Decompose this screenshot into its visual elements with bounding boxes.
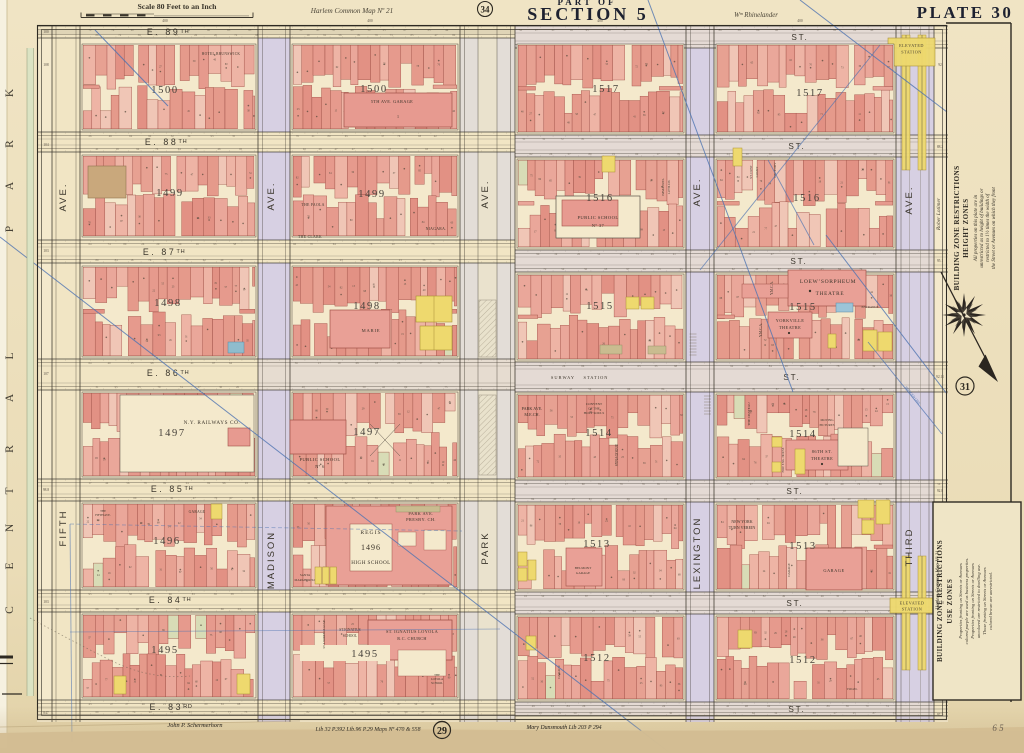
svg-text:66: 66 (745, 594, 749, 598)
svg-text:AVE.: AVE. (266, 182, 277, 211)
svg-text:70: 70 (310, 242, 314, 246)
svg-text:R.C. CHURCH: R.C. CHURCH (397, 636, 426, 641)
svg-text:46: 46 (109, 134, 113, 138)
svg-text:LUTH.CH.: LUTH.CH. (667, 180, 671, 195)
svg-text:50: 50 (415, 242, 419, 246)
svg-text:92.11: 92.11 (936, 375, 944, 379)
svg-text:41: 41 (96, 147, 100, 151)
svg-text:92: 92 (833, 28, 837, 32)
svg-text:6 5: 6 5 (992, 723, 1004, 733)
svg-text:75: 75 (628, 137, 632, 141)
svg-text:35: 35 (232, 134, 236, 138)
svg-text:63: 63 (737, 387, 741, 391)
svg-text:52: 52 (519, 28, 523, 32)
svg-text:82: 82 (763, 594, 767, 598)
svg-text:63: 63 (846, 137, 850, 141)
svg-text:34: 34 (481, 5, 491, 15)
svg-text:1515: 1515 (789, 302, 816, 313)
svg-text:PARK: PARK (480, 531, 491, 564)
svg-text:62: 62 (199, 607, 203, 611)
svg-text:61: 61 (300, 702, 304, 706)
svg-text:97: 97 (626, 267, 630, 271)
svg-text:Nº 6: Nº 6 (315, 464, 325, 469)
svg-text:Y.M.C.A.: Y.M.C.A. (770, 281, 774, 295)
svg-text:LEXINGTON: LEXINGTON (692, 517, 703, 590)
svg-text:50: 50 (438, 258, 442, 262)
svg-text:1496: 1496 (153, 536, 180, 547)
svg-text:24: 24 (874, 152, 878, 156)
svg-text:40: 40 (755, 267, 759, 271)
svg-text:74: 74 (765, 482, 769, 486)
svg-text:75: 75 (445, 385, 449, 389)
svg-text:80: 80 (561, 594, 565, 598)
svg-text:76: 76 (677, 152, 681, 156)
svg-text:91: 91 (825, 482, 829, 486)
svg-text:19: 19 (96, 496, 100, 500)
svg-text:17: 17 (318, 361, 322, 365)
svg-text:85: 85 (411, 33, 415, 37)
svg-text:32: 32 (438, 361, 442, 365)
svg-text:44: 44 (352, 496, 356, 500)
svg-text:59: 59 (325, 385, 329, 389)
svg-text:restricted to 1½ times the wid: restricted to 1½ times the width of (986, 193, 991, 262)
svg-text:56: 56 (295, 361, 299, 365)
svg-text:T: T (4, 487, 16, 494)
svg-text:59: 59 (376, 258, 380, 262)
svg-text:97: 97 (389, 607, 393, 611)
svg-text:GARAGE: GARAGE (189, 510, 206, 514)
svg-text:25: 25 (383, 28, 387, 32)
svg-text:SECTION 5: SECTION 5 (527, 4, 649, 24)
svg-text:93: 93 (664, 497, 668, 501)
svg-text:89: 89 (828, 609, 832, 613)
svg-text:56: 56 (126, 481, 130, 485)
svg-text:62: 62 (832, 497, 836, 501)
svg-text:50: 50 (561, 267, 565, 271)
svg-text:74: 74 (108, 242, 112, 246)
svg-text:26: 26 (785, 364, 789, 368)
svg-text:42: 42 (775, 28, 779, 32)
svg-text:1498: 1498 (154, 298, 181, 309)
svg-text:29: 29 (156, 242, 160, 246)
svg-text:49: 49 (651, 252, 655, 256)
svg-text:73: 73 (857, 482, 861, 486)
svg-text:58: 58 (233, 242, 237, 246)
svg-text:87: 87 (398, 702, 402, 706)
svg-text:46: 46 (821, 594, 825, 598)
svg-text:38: 38 (214, 592, 218, 596)
svg-text:29: 29 (889, 152, 893, 156)
svg-text:All properties on this plate a: All properties on this plate are in (974, 194, 979, 262)
svg-text:65: 65 (570, 28, 574, 32)
svg-text:31: 31 (546, 482, 550, 486)
svg-text:84: 84 (661, 387, 665, 391)
svg-text:47: 47 (193, 496, 197, 500)
svg-text:60: 60 (635, 152, 639, 156)
svg-text:THEATRE: THEATRE (779, 325, 801, 330)
svg-text:80: 80 (620, 364, 624, 368)
svg-text:62: 62 (129, 134, 133, 138)
svg-text:55: 55 (391, 481, 395, 485)
svg-text:90: 90 (131, 28, 135, 32)
svg-text:39: 39 (138, 33, 142, 37)
svg-text:NIAGARA.: NIAGARA. (426, 227, 447, 231)
svg-text:84: 84 (531, 497, 535, 501)
svg-text:31: 31 (96, 385, 100, 389)
svg-text:PLATE 30: PLATE 30 (917, 3, 1014, 22)
svg-text:35: 35 (649, 594, 653, 598)
svg-text:24: 24 (238, 607, 242, 611)
svg-text:79: 79 (158, 385, 162, 389)
svg-text:93: 93 (211, 134, 215, 138)
svg-text:96: 96 (309, 592, 313, 596)
svg-text:17: 17 (565, 482, 569, 486)
svg-text:78: 78 (675, 609, 679, 613)
svg-text:SCHOOL: SCHOOL (343, 634, 357, 638)
svg-text:96: 96 (223, 481, 227, 485)
svg-text:86: 86 (604, 364, 608, 368)
svg-text:ST.: ST. (788, 142, 805, 151)
svg-text:72: 72 (89, 28, 93, 32)
svg-text:39: 39 (409, 481, 413, 485)
svg-text:92: 92 (730, 364, 734, 368)
svg-text:46: 46 (142, 702, 146, 706)
svg-text:96: 96 (207, 28, 211, 32)
svg-text:PRESBY. CH.: PRESBY. CH. (406, 517, 436, 522)
svg-text:26: 26 (194, 33, 198, 37)
svg-text:75: 75 (431, 242, 435, 246)
svg-text:27: 27 (592, 609, 596, 613)
svg-text:76: 76 (148, 258, 152, 262)
svg-text:15: 15 (131, 361, 135, 365)
svg-text:1515: 1515 (586, 301, 613, 312)
svg-text:78: 78 (727, 594, 731, 598)
svg-text:57: 57 (568, 152, 572, 156)
svg-text:85: 85 (657, 482, 661, 486)
svg-text:64: 64 (656, 609, 660, 613)
svg-text:1517: 1517 (592, 84, 619, 95)
svg-text:82: 82 (861, 387, 865, 391)
svg-text:30: 30 (219, 385, 223, 389)
svg-text:65: 65 (345, 134, 349, 138)
svg-text:Scale 80 Feet to an Inch: Scale 80 Feet to an Inch (137, 2, 217, 11)
svg-text:16: 16 (833, 152, 837, 156)
svg-text:20: 20 (841, 482, 845, 486)
svg-text:31: 31 (960, 382, 970, 393)
svg-text:47: 47 (335, 147, 339, 151)
svg-text:87: 87 (585, 594, 589, 598)
svg-text:17: 17 (422, 592, 426, 596)
svg-text:25: 25 (428, 28, 432, 32)
svg-text:108: 108 (43, 63, 49, 67)
svg-text:1514: 1514 (585, 428, 612, 439)
svg-text:SANTA: SANTA (300, 573, 311, 577)
svg-text:65: 65 (881, 594, 885, 598)
svg-text:88.2: 88.2 (937, 145, 943, 149)
svg-text:Mary Dunsmouth Lib 203 P 294: Mary Dunsmouth Lib 203 P 294 (525, 724, 601, 731)
svg-text:71: 71 (345, 385, 349, 389)
svg-text:66: 66 (293, 242, 297, 246)
svg-text:47: 47 (450, 607, 454, 611)
svg-text:Harlem Common Map Nº 21: Harlem Common Map Nº 21 (310, 7, 394, 15)
svg-text:37: 37 (419, 361, 423, 365)
svg-text:20: 20 (626, 594, 630, 598)
svg-text:27: 27 (531, 609, 535, 613)
svg-text:P: P (4, 226, 16, 232)
svg-text:76: 76 (397, 134, 401, 138)
svg-text:AVE.: AVE. (480, 180, 491, 209)
svg-text:87: 87 (677, 482, 681, 486)
svg-text:31: 31 (454, 496, 458, 500)
svg-text:91: 91 (364, 134, 368, 138)
svg-text:400: 400 (797, 19, 803, 23)
svg-text:16: 16 (112, 496, 116, 500)
svg-text:67: 67 (230, 496, 234, 500)
svg-text:37: 37 (381, 134, 385, 138)
svg-text:17: 17 (619, 252, 623, 256)
svg-text:64: 64 (756, 28, 760, 32)
svg-text:43: 43 (569, 387, 573, 391)
svg-text:70: 70 (214, 496, 218, 500)
svg-text:21: 21 (673, 252, 677, 256)
svg-text:46: 46 (218, 147, 222, 151)
svg-text:96: 96 (882, 137, 886, 141)
svg-text:AVE.: AVE. (904, 186, 915, 215)
svg-text:27: 27 (125, 702, 129, 706)
svg-text:60: 60 (205, 702, 209, 706)
svg-text:OF THE: OF THE (588, 407, 600, 411)
svg-text:45: 45 (658, 267, 662, 271)
svg-text:80: 80 (807, 482, 811, 486)
svg-text:PUBLIC SCHOOL: PUBLIC SCHOOL (577, 215, 618, 220)
svg-text:104: 104 (43, 143, 49, 147)
svg-text:51: 51 (523, 137, 527, 141)
svg-text:20: 20 (746, 364, 750, 368)
svg-text:64: 64 (229, 361, 233, 365)
svg-text:88: 88 (674, 364, 678, 368)
svg-text:23: 23 (397, 361, 401, 365)
svg-text:24: 24 (670, 137, 674, 141)
svg-text:72: 72 (234, 33, 238, 37)
svg-text:89: 89 (546, 387, 550, 391)
svg-text:90: 90 (792, 28, 796, 32)
svg-text:19: 19 (307, 33, 311, 37)
svg-text:NEW YORK: NEW YORK (731, 519, 752, 524)
svg-text:54: 54 (360, 702, 364, 706)
svg-text:78: 78 (382, 592, 386, 596)
svg-text:81: 81 (852, 252, 856, 256)
svg-text:73: 73 (636, 252, 640, 256)
svg-text:74: 74 (111, 28, 115, 32)
svg-text:A: A (4, 181, 16, 190)
svg-text:MARIE: MARIE (362, 328, 381, 333)
svg-text:42: 42 (307, 481, 311, 485)
svg-text:93: 93 (245, 481, 249, 485)
svg-text:60: 60 (380, 702, 384, 706)
svg-text:1496: 1496 (361, 543, 381, 552)
svg-text:400: 400 (367, 19, 373, 23)
svg-text:31: 31 (843, 387, 847, 391)
svg-text:93: 93 (213, 242, 217, 246)
svg-text:SYNAGOGUE: SYNAGOGUE (615, 443, 619, 466)
svg-text:66: 66 (879, 482, 883, 486)
svg-text:68: 68 (879, 387, 883, 391)
svg-text:17: 17 (89, 481, 93, 485)
svg-text:74: 74 (180, 385, 184, 389)
svg-text:68: 68 (356, 361, 360, 365)
svg-text:64: 64 (333, 242, 337, 246)
svg-text:John P. Schermerhorn: John P. Schermerhorn (168, 722, 223, 729)
svg-text:94: 94 (136, 147, 140, 151)
svg-text:39: 39 (738, 28, 742, 32)
svg-text:81: 81 (582, 137, 586, 141)
svg-text:95.1: 95.1 (937, 259, 943, 263)
svg-text:58: 58 (548, 609, 552, 613)
svg-text:77: 77 (371, 147, 375, 151)
svg-text:58: 58 (173, 361, 177, 365)
svg-text:77: 77 (185, 258, 189, 262)
svg-text:MADISON: MADISON (266, 531, 277, 589)
svg-text:63: 63 (638, 364, 642, 368)
svg-text:94: 94 (316, 607, 320, 611)
svg-text:49: 49 (826, 387, 830, 391)
svg-text:1498: 1498 (353, 301, 380, 312)
svg-text:PUBLIC SCHOOL: PUBLIC SCHOOL (299, 457, 340, 462)
svg-text:VOGEL: VOGEL (847, 687, 858, 691)
svg-text:29: 29 (437, 726, 447, 737)
svg-text:ST.: ST. (783, 373, 800, 382)
svg-text:95: 95 (115, 385, 119, 389)
svg-text:STATION: STATION (902, 607, 923, 612)
svg-text:80: 80 (328, 134, 332, 138)
svg-text:83: 83 (426, 385, 430, 389)
svg-text:86: 86 (581, 364, 585, 368)
svg-text:C: C (4, 606, 16, 614)
svg-text:63: 63 (138, 385, 142, 389)
svg-text:19: 19 (650, 137, 654, 141)
svg-text:THE CHATEAU: THE CHATEAU (747, 402, 751, 426)
svg-text:31: 31 (762, 137, 766, 141)
svg-text:23: 23 (388, 147, 392, 151)
svg-text:49: 49 (782, 594, 786, 598)
svg-text:MOVING: MOVING (820, 418, 834, 422)
svg-text:78: 78 (539, 364, 543, 368)
svg-text:20: 20 (392, 242, 396, 246)
svg-text:1516: 1516 (793, 193, 820, 204)
svg-text:16: 16 (524, 594, 528, 598)
svg-text:Properties fronting on Streets: Properties fronting on Streets or Avenue… (970, 563, 975, 640)
svg-text:21: 21 (312, 134, 316, 138)
svg-text:103: 103 (43, 249, 49, 253)
svg-text:ENTRANCE: ENTRANCE (862, 305, 879, 309)
svg-text:5TH AVE. GARAGE: 5TH AVE. GARAGE (371, 99, 413, 104)
svg-text:HOTEL BRUNSWICK: HOTEL BRUNSWICK (202, 52, 241, 56)
svg-text:57: 57 (623, 28, 627, 32)
svg-text:24: 24 (370, 607, 374, 611)
svg-text:40: 40 (553, 497, 557, 501)
svg-text:LOEW’SORPHEUM: LOEW’SORPHEUM (800, 279, 856, 285)
svg-text:Lib 32 P.392 Lib.96 P.29 Maps: Lib 32 P.392 Lib.96 P.29 Maps Nº 470 & 5… (315, 726, 421, 733)
svg-text:26: 26 (236, 385, 240, 389)
svg-text:TURN VEREIN: TURN VEREIN (729, 525, 756, 530)
svg-text:K: K (4, 88, 16, 97)
svg-text:95: 95 (680, 267, 684, 271)
svg-text:32: 32 (322, 702, 326, 706)
svg-text:ELEVATED: ELEVATED (899, 43, 924, 48)
svg-text:95: 95 (586, 28, 590, 32)
svg-text:1500: 1500 (360, 84, 387, 95)
svg-text:93: 93 (645, 387, 649, 391)
svg-text:42: 42 (434, 134, 438, 138)
svg-text:CONVENT: CONVENT (586, 402, 603, 406)
svg-text:Wᵐ Rhinelander: Wᵐ Rhinelander (734, 12, 778, 19)
svg-text:44: 44 (105, 481, 109, 485)
svg-text:FIRE ENG. HOUSE: FIRE ENG. HOUSE (781, 447, 785, 472)
svg-text:94: 94 (536, 252, 540, 256)
svg-text:90: 90 (605, 137, 609, 141)
svg-text:AVE.: AVE. (692, 178, 703, 207)
svg-text:39: 39 (431, 481, 435, 485)
svg-text:ST.: ST. (786, 599, 803, 608)
svg-text:400: 400 (597, 19, 603, 23)
svg-text:96: 96 (611, 387, 615, 391)
svg-text:94: 94 (186, 481, 190, 485)
svg-text:Rober Lotimer: Rober Lotimer (936, 197, 942, 231)
svg-text:98: 98 (604, 267, 608, 271)
svg-text:40: 40 (220, 258, 224, 262)
svg-text:54: 54 (194, 147, 198, 151)
svg-text:N: N (4, 523, 16, 532)
svg-text:27: 27 (750, 482, 754, 486)
svg-text:65: 65 (227, 28, 231, 32)
svg-text:23: 23 (399, 258, 403, 262)
svg-text:1513: 1513 (583, 539, 610, 550)
svg-text:84: 84 (115, 258, 119, 262)
svg-text:81: 81 (358, 33, 362, 37)
svg-text:ST. DUST: ST. DUST (749, 165, 753, 178)
svg-text:35: 35 (873, 252, 877, 256)
svg-text:30: 30 (647, 28, 651, 32)
svg-text:27: 27 (438, 496, 442, 500)
svg-text:MARGHERITA: MARGHERITA (295, 578, 317, 582)
svg-text:78: 78 (681, 387, 685, 391)
svg-text:67: 67 (843, 609, 847, 613)
svg-text:47: 47 (110, 702, 114, 706)
svg-text:THEATRE: THEATRE (811, 456, 833, 461)
svg-text:Y.M.C.A.: Y.M.C.A. (759, 323, 763, 337)
svg-text:51: 51 (770, 609, 774, 613)
svg-text:56: 56 (937, 482, 941, 486)
svg-text:38: 38 (231, 592, 235, 596)
svg-text:98.8: 98.8 (43, 488, 49, 492)
svg-text:87: 87 (776, 387, 780, 391)
svg-text:78: 78 (836, 364, 840, 368)
svg-text:97: 97 (212, 361, 216, 365)
svg-text:55: 55 (353, 242, 357, 246)
svg-text:17: 17 (816, 28, 820, 32)
svg-text:HOLY SOULS: HOLY SOULS (584, 411, 605, 415)
svg-text:YORKVILLE: YORKVILLE (776, 318, 805, 323)
svg-text:103: 103 (43, 600, 49, 604)
svg-text:22: 22 (300, 28, 304, 32)
svg-text:50: 50 (414, 702, 418, 706)
svg-text:52: 52 (368, 28, 372, 32)
svg-text:53: 53 (332, 607, 336, 611)
svg-text:50: 50 (584, 267, 588, 271)
svg-text:16: 16 (196, 242, 200, 246)
svg-text:28: 28 (649, 497, 653, 501)
svg-text:66: 66 (819, 364, 823, 368)
